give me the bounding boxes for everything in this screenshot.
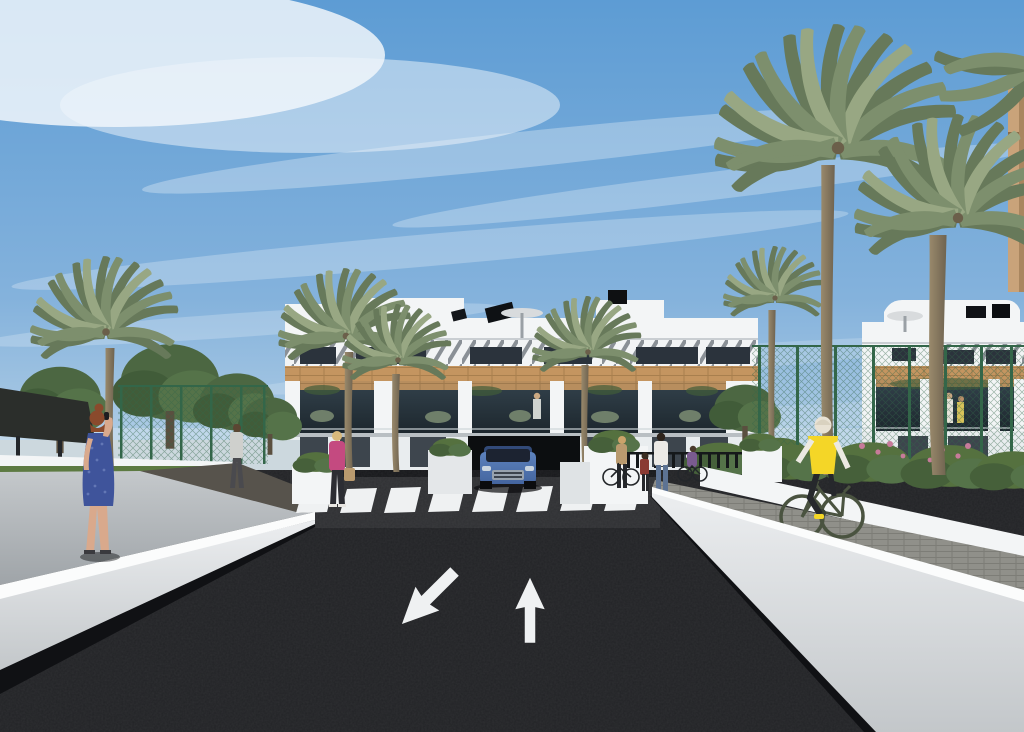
car-grille [492, 470, 524, 480]
green-fence-left [118, 385, 268, 464]
windshield [486, 449, 530, 462]
phone [104, 412, 109, 420]
hair-bun [95, 404, 104, 413]
headlight [482, 466, 491, 471]
person-adult-white-top [654, 433, 668, 493]
scene-svg [0, 0, 1024, 732]
headlight [525, 466, 534, 471]
render-canvas [0, 0, 1024, 732]
balcony-resident-center [533, 393, 541, 419]
handbag [344, 468, 355, 481]
car [474, 446, 542, 493]
pergola-strip [285, 381, 758, 390]
